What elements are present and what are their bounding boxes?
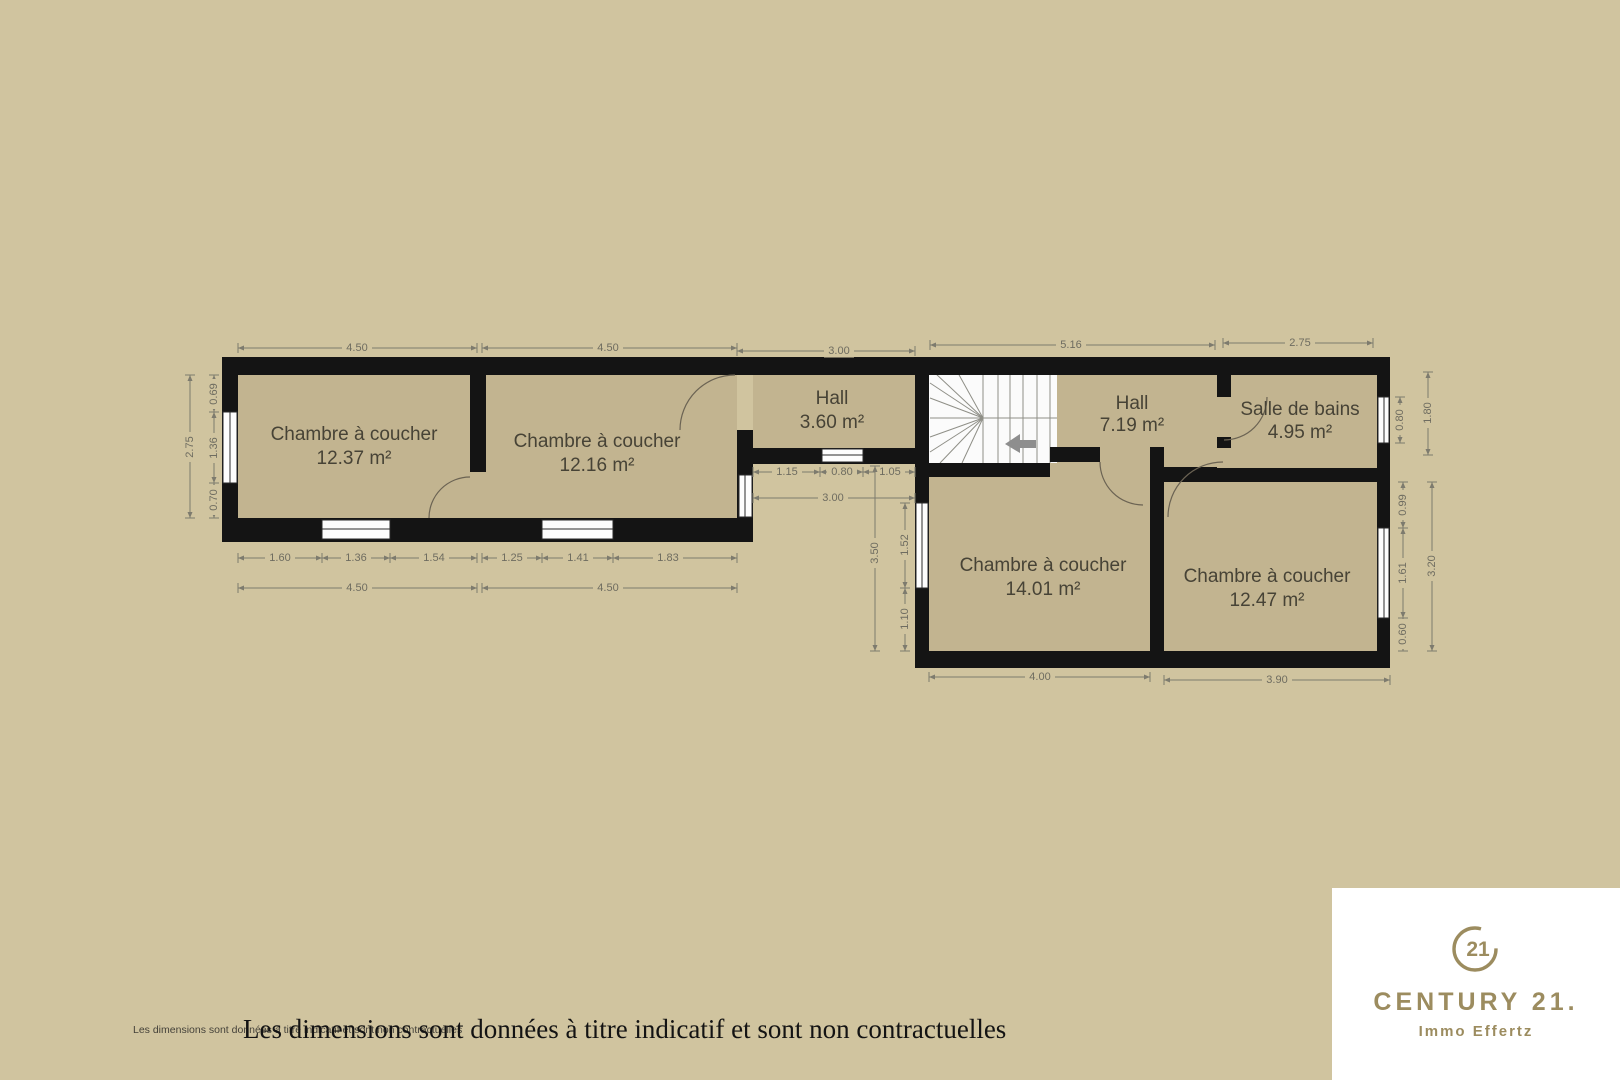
floorplan: 4.504.503.005.162.752.750.691.360.701.60… — [175, 330, 1445, 695]
dimension-label: 5.16 — [1060, 339, 1081, 351]
dimension-label: 0.69 — [208, 383, 220, 404]
dimension-label: 2.75 — [1289, 337, 1310, 349]
dimension-label: 0.80 — [1394, 409, 1406, 430]
agency-logo-card: 21 CENTURY 21. Immo Effertz — [1332, 888, 1620, 1080]
dimension-label: 1.41 — [567, 552, 588, 564]
dimension-label: 1.25 — [501, 552, 522, 564]
dimension-label: 4.50 — [597, 582, 618, 594]
dimension-label: 3.50 — [869, 542, 881, 563]
dimension-label: 1.60 — [269, 552, 290, 564]
dimension-label: 1.83 — [657, 552, 678, 564]
room-label: Chambre à coucher — [271, 424, 439, 445]
floorplan-page: 4.504.503.005.162.752.750.691.360.701.60… — [0, 0, 1620, 1080]
dimension-label: 1.80 — [1422, 402, 1434, 423]
room-label: Chambre à coucher — [1184, 566, 1352, 587]
room-area: 12.16 m² — [560, 455, 635, 476]
room-label: Hall — [1116, 393, 1149, 414]
staircase — [929, 372, 1057, 463]
room-area: 4.95 m² — [1268, 422, 1332, 443]
dimension-label: 0.60 — [1397, 623, 1409, 644]
dimension-label: 1.15 — [776, 466, 797, 478]
disclaimer-text-large: Les dimensions sont données à titre indi… — [243, 1014, 1006, 1045]
dimension-label: 2.75 — [184, 436, 196, 457]
room-area: 14.01 m² — [1006, 579, 1081, 600]
dimension-label: 1.61 — [1397, 562, 1409, 583]
room-area: 7.19 m² — [1100, 415, 1164, 436]
dimension-label: 3.00 — [822, 492, 843, 504]
room-label: Chambre à coucher — [514, 431, 682, 452]
room-label: Hall — [816, 388, 849, 409]
brand-wordmark: CENTURY 21. — [1373, 988, 1578, 1017]
dimension-label: 3.00 — [828, 345, 849, 357]
century21-seal-icon: 21 — [1450, 922, 1502, 974]
dimension-label: 4.50 — [346, 582, 367, 594]
dimension-label: 0.80 — [831, 466, 852, 478]
room-area: 12.37 m² — [317, 448, 392, 469]
seal-number: 21 — [1466, 938, 1490, 961]
room-area: 3.60 m² — [800, 412, 864, 433]
dimension-label: 0.70 — [208, 489, 220, 510]
dimension-label: 0.99 — [1397, 494, 1409, 515]
dimension-label: 4.00 — [1029, 671, 1050, 683]
dimension-label: 3.90 — [1266, 674, 1287, 686]
brand-subline: Immo Effertz — [1419, 1023, 1534, 1040]
room-area: 12.47 m² — [1230, 590, 1305, 611]
room-label: Chambre à coucher — [960, 555, 1128, 576]
room-label: Salle de bains — [1240, 399, 1359, 420]
dimension-label: 1.52 — [899, 534, 911, 555]
dimension-label: 1.36 — [345, 552, 366, 564]
dimension-label: 1.54 — [423, 552, 444, 564]
dimension-label: 4.50 — [597, 342, 618, 354]
dimension-label: 1.10 — [899, 608, 911, 629]
dimension-label: 1.36 — [208, 437, 220, 458]
dimension-label: 4.50 — [346, 342, 367, 354]
dimension-label: 1.05 — [879, 466, 900, 478]
dimension-label: 3.20 — [1426, 555, 1438, 576]
